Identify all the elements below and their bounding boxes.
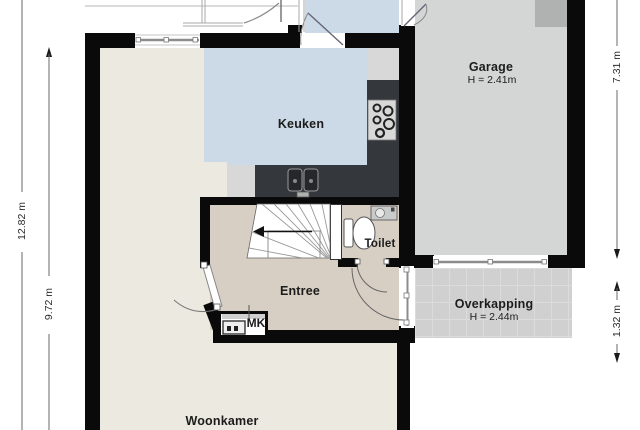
- wall-toilet-left-light: [330, 204, 342, 260]
- window-top-opening: [135, 33, 200, 48]
- wall-left: [85, 33, 100, 430]
- garage-floor: [415, 0, 567, 255]
- wall-toilet-bottom-b: [386, 258, 399, 267]
- wall-top-b: [200, 33, 300, 48]
- kitchen-counter-right: [367, 80, 399, 198]
- dimension-right-garage: 7.31 m: [611, 44, 623, 90]
- wall-garage-right: [567, 0, 585, 268]
- floorplan: Keuken Garage H = 2.41m Toilet Entree Wo…: [0, 0, 640, 430]
- woonkamer-label: Woonkamer: [152, 414, 292, 428]
- wall-entree-left: [200, 197, 210, 268]
- garage-label: Garage: [431, 60, 551, 74]
- dimension-right-overkapping: 1.32 m: [611, 299, 623, 343]
- wall-woonkamer-right: [397, 343, 410, 430]
- door-kitchen-top-opening: [300, 33, 345, 48]
- garage-installation-block: [535, 0, 567, 27]
- wall-top-c: [345, 33, 399, 48]
- entree-label: Entree: [240, 284, 360, 298]
- garage-height: H = 2.41m: [432, 74, 552, 86]
- toilet-label: Toilet: [345, 238, 415, 250]
- dimension-left-outer: 12.82 m: [16, 193, 28, 249]
- dimension-left-inner: 9.72 m: [43, 281, 55, 327]
- top-door-swing: [244, 0, 281, 23]
- kitchen-counter-light-top: [367, 48, 399, 80]
- wall-entree-top: [200, 197, 399, 205]
- wall-right-vertical: [399, 25, 415, 268]
- keuken-label: Keuken: [241, 117, 361, 131]
- meterkast-label: MK: [245, 316, 267, 330]
- garage-door-opening: [401, 0, 415, 26]
- overkapping-label: Overkapping: [424, 297, 564, 311]
- kitchen-counter-light-left: [227, 165, 255, 198]
- overkapping-height: H = 2.44m: [424, 311, 564, 323]
- window-garage-opening: [433, 256, 548, 268]
- kitchen-counter-bottom: [255, 165, 367, 198]
- top-room-floor: [305, 0, 399, 33]
- wall-top-a: [85, 33, 135, 48]
- front-door-opening: [401, 266, 414, 328]
- wall-frontdoor-corner: [399, 326, 415, 343]
